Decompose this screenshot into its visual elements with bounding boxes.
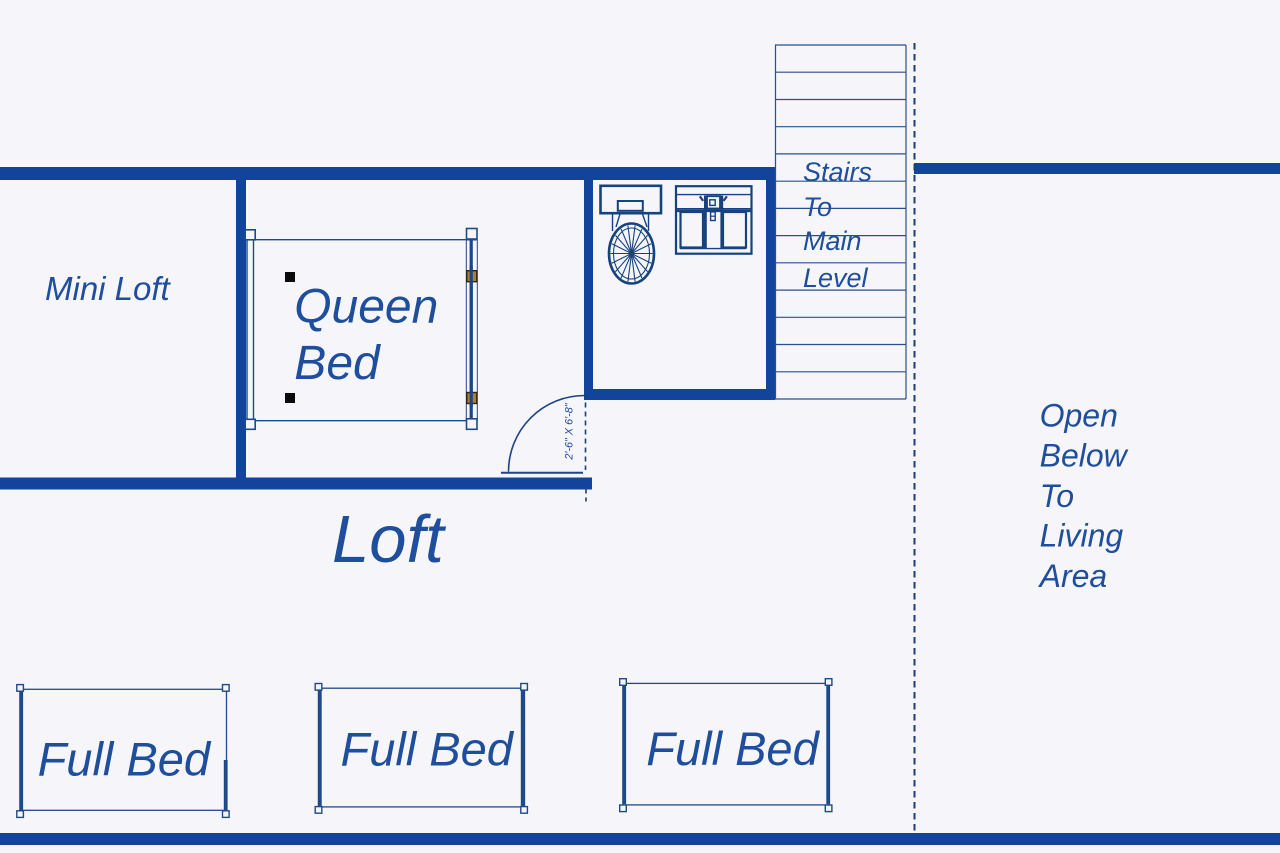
svg-text:Living: Living xyxy=(1040,517,1124,553)
svg-text:2'-6" X 6'-8": 2'-6" X 6'-8" xyxy=(564,402,576,460)
svg-text:To: To xyxy=(803,192,832,222)
svg-text:Full Bed: Full Bed xyxy=(341,723,515,776)
svg-text:Main: Main xyxy=(803,226,862,256)
svg-text:Stairs: Stairs xyxy=(803,157,872,187)
svg-text:Bed: Bed xyxy=(294,337,381,390)
svg-text:Full Bed: Full Bed xyxy=(646,722,820,775)
svg-text:Below: Below xyxy=(1040,438,1129,474)
svg-text:Mini Loft: Mini Loft xyxy=(45,270,172,307)
svg-text:Loft: Loft xyxy=(332,502,446,577)
svg-text:Full Bed: Full Bed xyxy=(38,733,212,786)
svg-text:Level: Level xyxy=(803,263,869,293)
svg-text:Open: Open xyxy=(1040,397,1118,433)
svg-text:To: To xyxy=(1040,478,1074,514)
svg-text:Queen: Queen xyxy=(294,281,438,334)
svg-text:Area: Area xyxy=(1038,558,1108,594)
